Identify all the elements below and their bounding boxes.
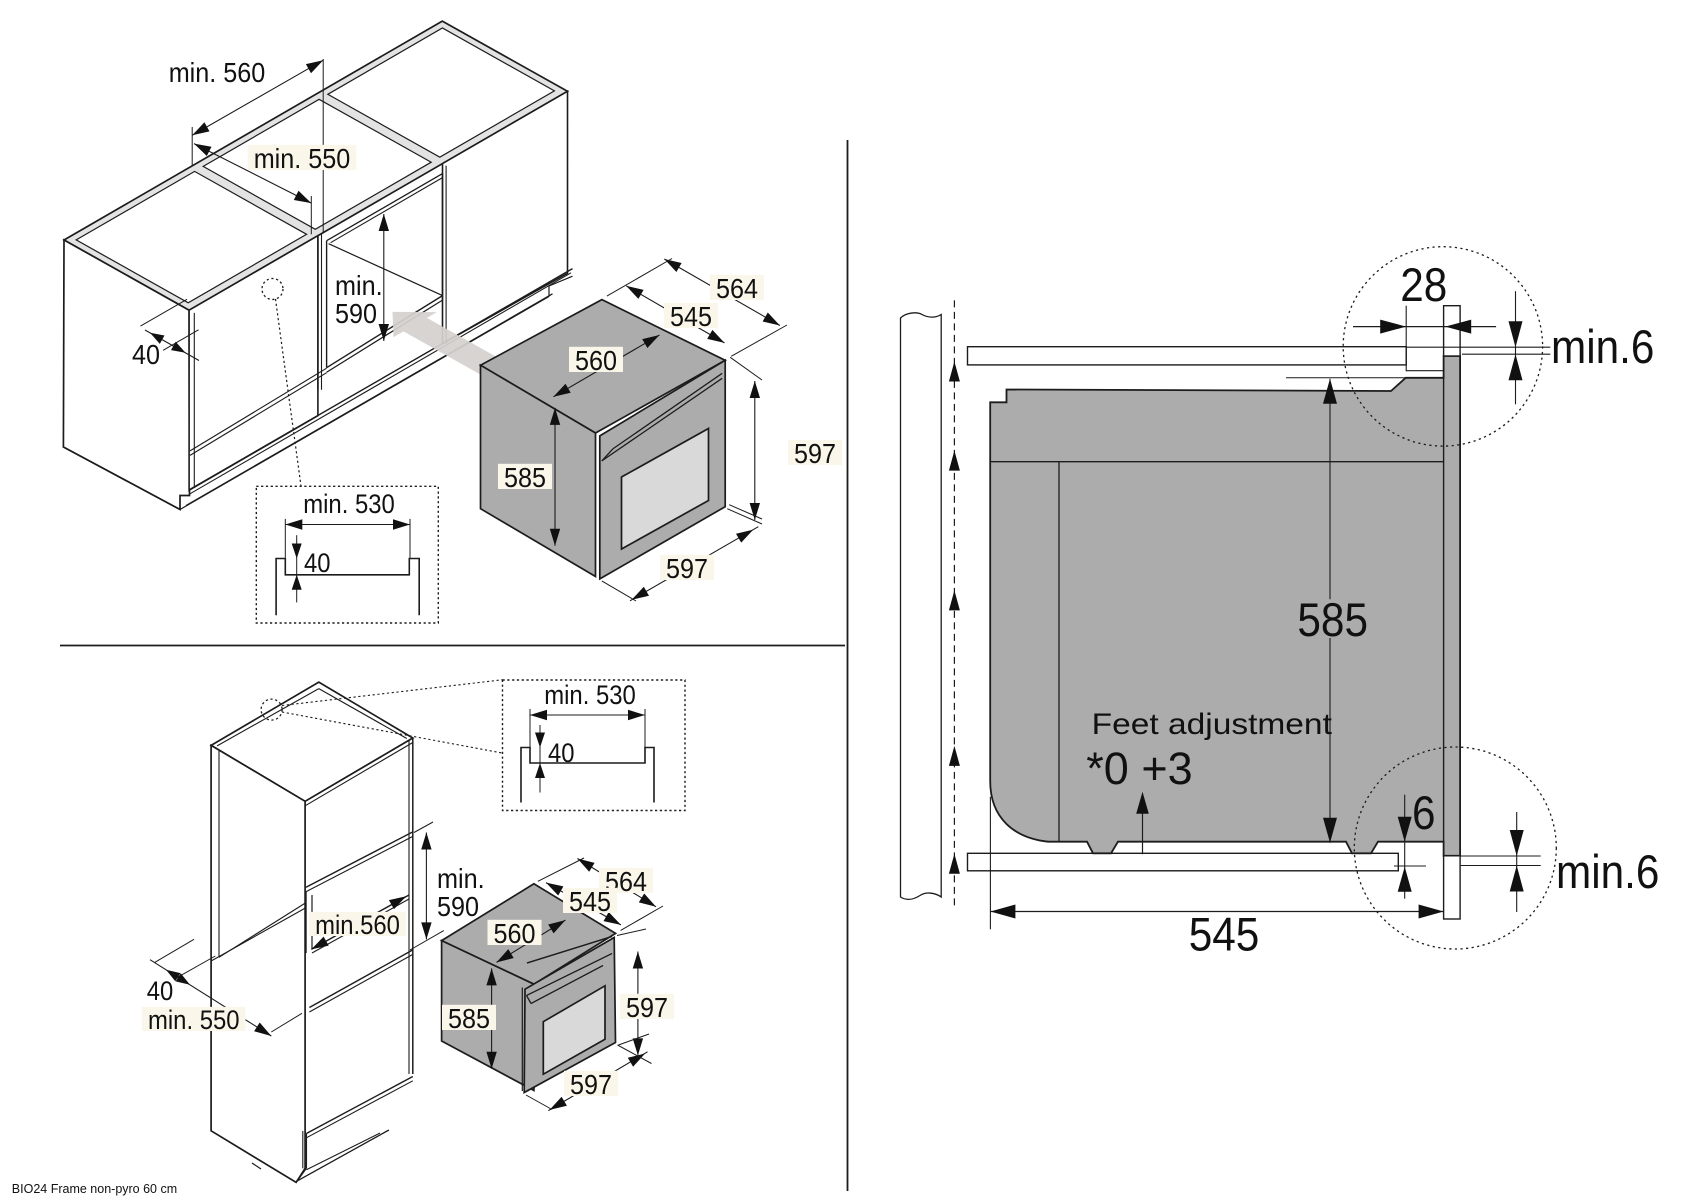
- svg-text:6: 6: [1412, 786, 1436, 839]
- svg-text:min.: min.: [437, 863, 485, 894]
- svg-text:Feet adjustment: Feet adjustment: [1092, 708, 1333, 741]
- svg-text:545: 545: [569, 886, 611, 917]
- svg-text:590: 590: [437, 891, 479, 922]
- svg-text:min.560: min.560: [315, 910, 400, 940]
- svg-text:585: 585: [504, 462, 546, 493]
- svg-text:min.: min.: [335, 270, 383, 301]
- svg-text:40: 40: [548, 738, 575, 768]
- svg-text:545: 545: [670, 301, 712, 332]
- svg-text:min. 550: min. 550: [148, 1005, 240, 1035]
- svg-text:545: 545: [1189, 908, 1260, 961]
- svg-text:597: 597: [794, 438, 836, 469]
- svg-text:*0 +3: *0 +3: [1086, 743, 1192, 794]
- svg-text:597: 597: [626, 992, 668, 1023]
- svg-text:560: 560: [494, 918, 536, 949]
- svg-text:564: 564: [716, 273, 758, 304]
- svg-text:28: 28: [1400, 258, 1447, 311]
- svg-text:597: 597: [666, 553, 708, 584]
- svg-text:40: 40: [304, 548, 331, 578]
- svg-text:585: 585: [448, 1003, 490, 1034]
- svg-text:min. 530: min. 530: [303, 489, 395, 519]
- svg-text:560: 560: [575, 345, 617, 376]
- svg-text:40: 40: [147, 976, 174, 1006]
- svg-text:min. 560: min. 560: [169, 57, 266, 88]
- svg-text:40: 40: [132, 339, 160, 370]
- svg-text:585: 585: [1297, 593, 1368, 646]
- svg-text:min. 530: min. 530: [544, 680, 636, 710]
- svg-text:min.6: min.6: [1551, 320, 1654, 373]
- svg-text:597: 597: [570, 1069, 612, 1100]
- svg-text:BIO24 Frame non-pyro 60 cm: BIO24 Frame non-pyro 60 cm: [12, 1182, 177, 1196]
- svg-text:min. 550: min. 550: [254, 143, 351, 174]
- svg-text:590: 590: [335, 298, 377, 329]
- svg-text:min.6: min.6: [1556, 845, 1659, 898]
